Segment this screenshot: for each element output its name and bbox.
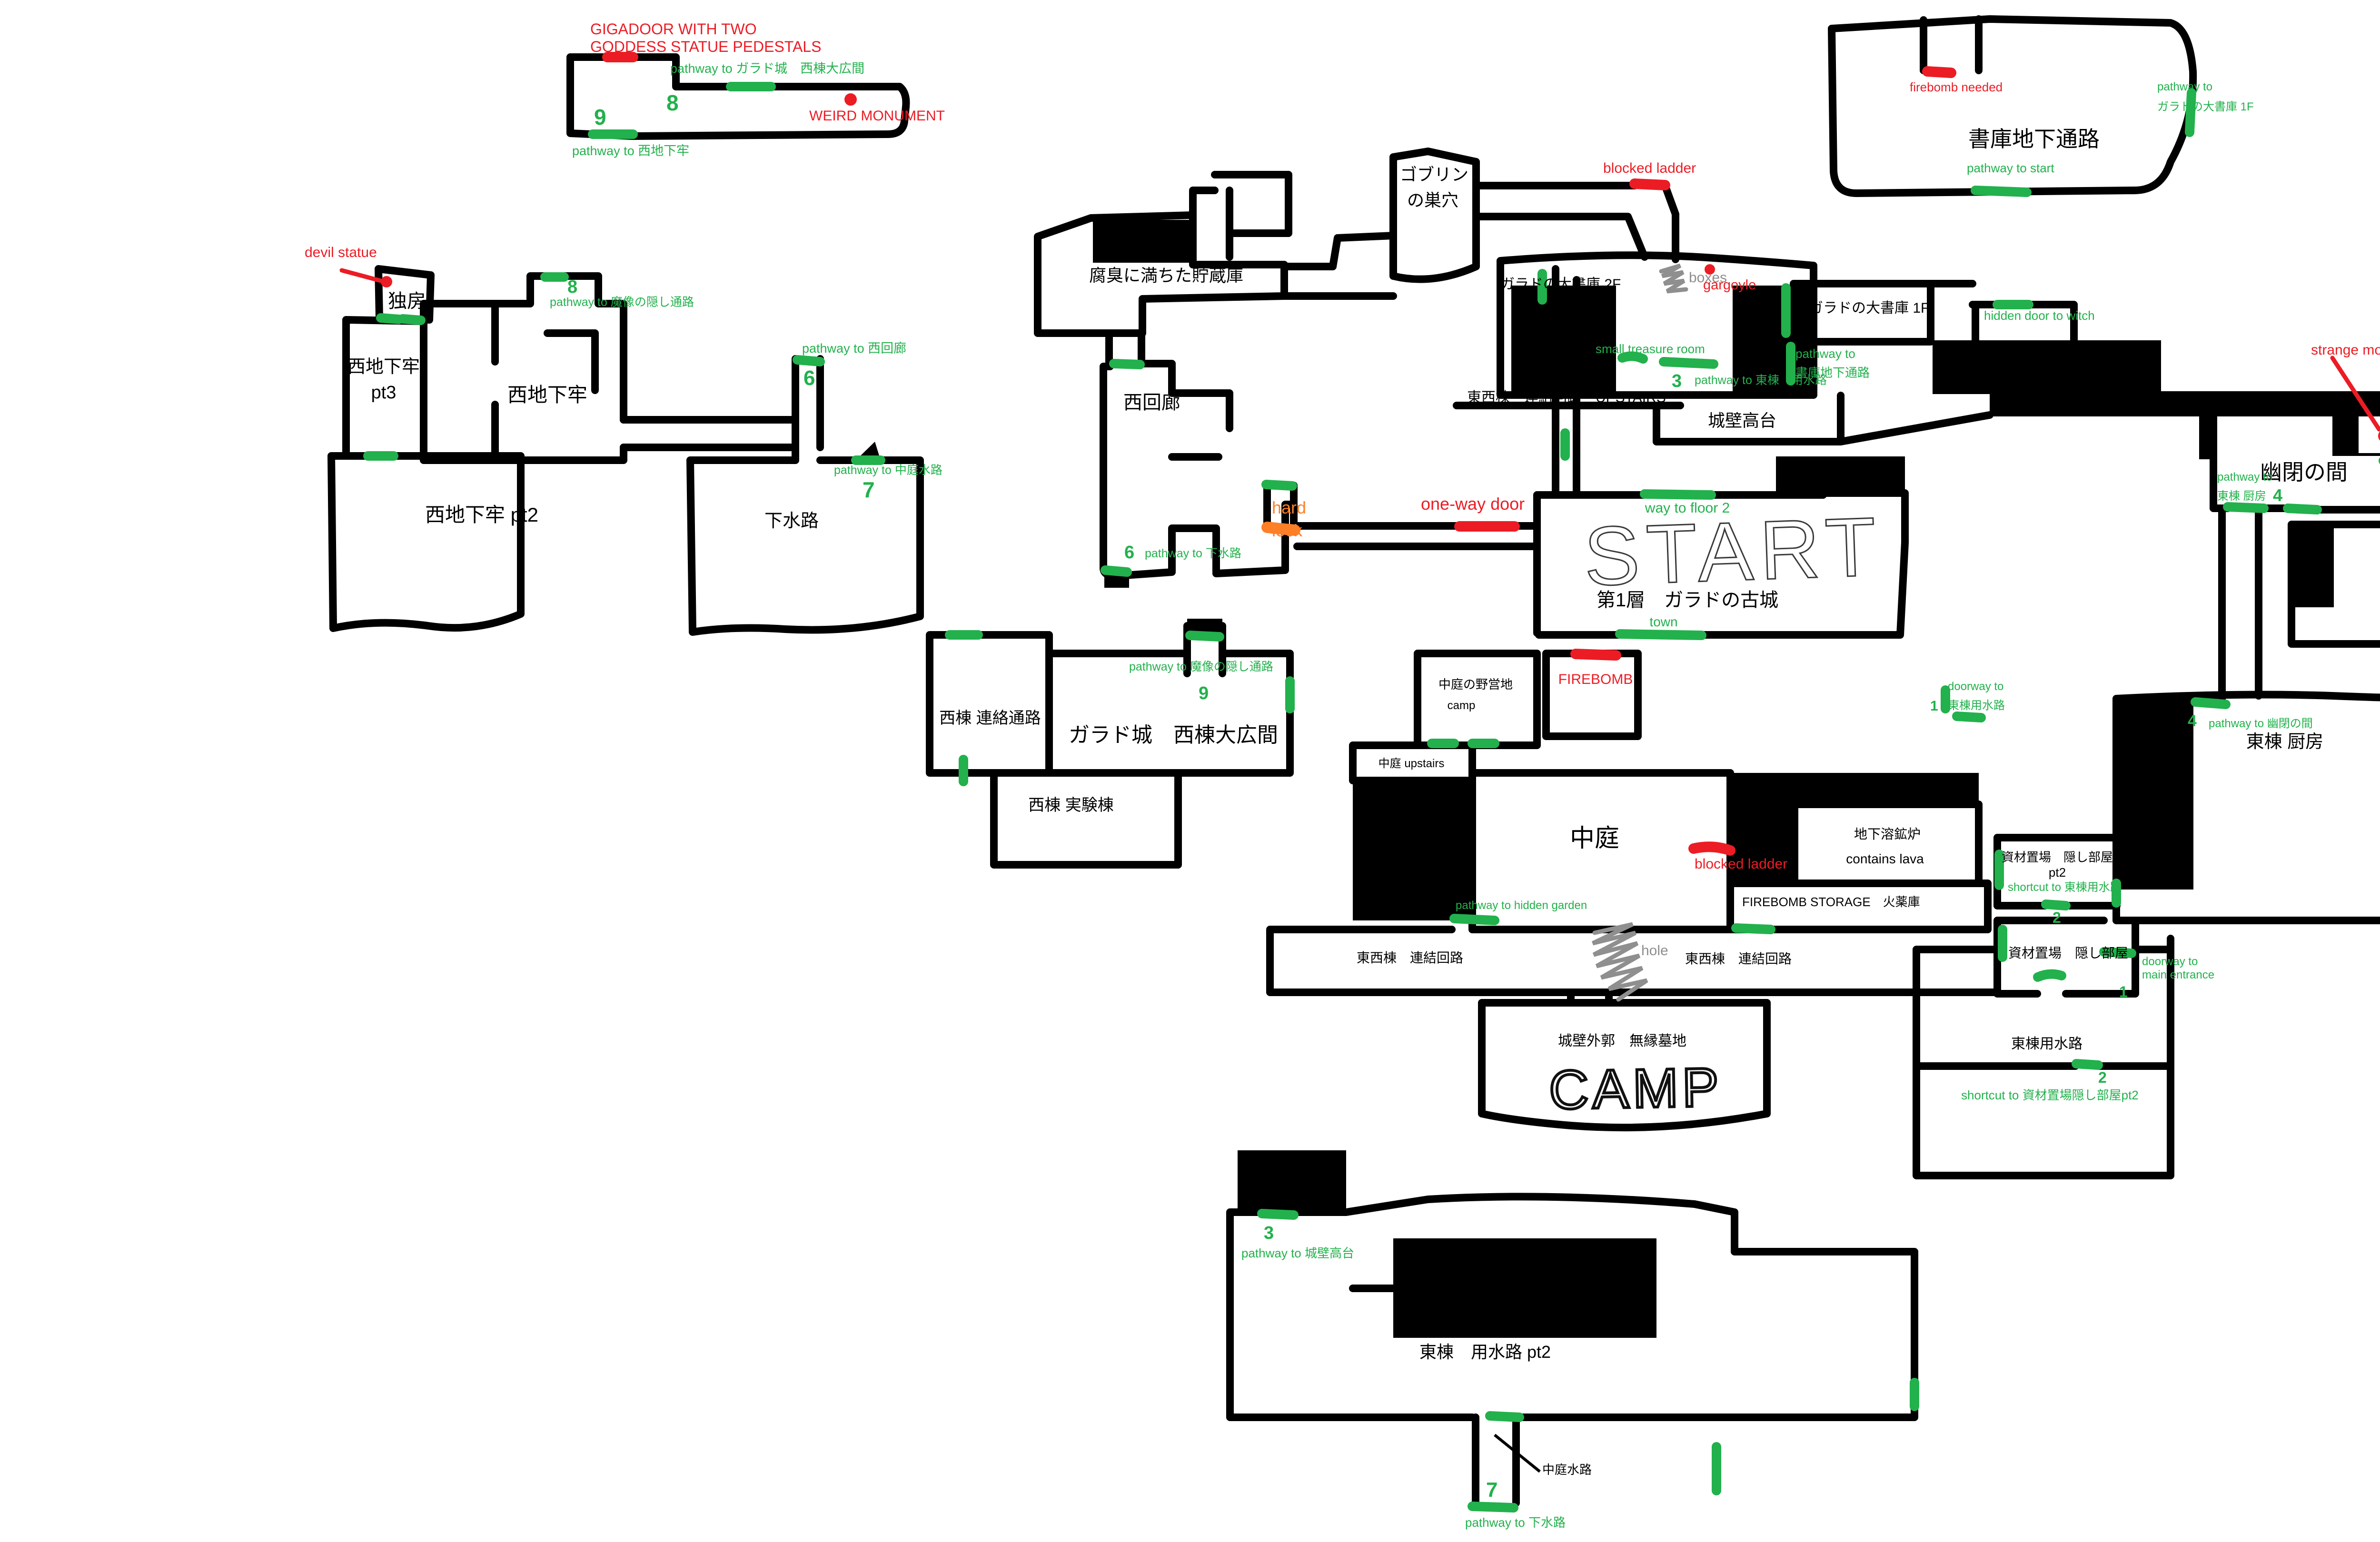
room-yuhei: 幽閉の間 [2260,461,2348,484]
room-east-yosuiro-pt2: 東棟 用水路 pt2 [1419,1343,1551,1361]
green-door [1620,634,1702,635]
green-door [1490,1416,1519,1417]
wall-fill [1238,1150,1346,1210]
note-strange-monument: strange monument [2311,343,2380,358]
map-canvas: START CAMP [0,0,2380,1542]
pathway-number-7b: 7 [1486,1479,1497,1501]
weird-monument-dot [844,93,857,106]
pathway-number-4a: 4 [2273,486,2282,504]
start-lettering: START [1583,500,1884,603]
room-walls [331,19,2380,1505]
pathway-number-4b: 4 [2188,713,2197,730]
pathway-number-1a: 1 [1930,699,1938,714]
pathway-way-floor2: way to floor 2 [1645,501,1730,516]
green-door [1262,1214,1294,1215]
pathway-garado-west-hall: pathway to ガラド城 西棟大広間 [670,62,864,75]
room-nakaniwa-suiro: 中庭水路 [1542,1463,1592,1476]
green-door [1645,494,1711,495]
pathway-number-3a: 3 [1672,372,1682,391]
red-door-blocked-ladder-top [1635,184,1665,185]
pathway-town: town [1649,615,1677,629]
room-shizai-pt2-l1: 資材置場 隠し部屋 [2002,851,2113,864]
pathway-shoko-chika-l2: 書庫地下通路 [1795,366,1870,379]
room-fushu-storage: 腐臭に満ちた貯蔵庫 [1089,267,1243,285]
room-west-renraku: 西棟 連絡通路 [939,710,1041,727]
room-joheki-takadai: 城壁高台 [1708,412,1776,430]
hand-drawn-dungeon-map: START CAMP GIGADOOR WITH TWO GODDESS STA… [0,0,2380,1542]
pathway-yuhei: pathway to 幽閉の間 [2209,718,2313,730]
pathway-gesuiro-west: pathway to 下水路 [1145,547,1241,560]
red-door-blocked-ladder-mid [1694,847,1730,850]
green-door [1716,1383,1914,1491]
green-door [1472,1506,1514,1508]
room-renketsu-right: 東西棟 連結回路 [1685,952,1792,966]
note-gigadoor-line1: GIGADOOR WITH TWO [590,21,757,38]
green-door [1786,288,1791,381]
room-west-jikken: 西棟 実験棟 [1028,797,1113,814]
wall-firebomb-room [1546,653,1638,736]
pathway-kitchen-l1: pathway to [2217,471,2272,483]
pathway-number-1b: 1 [2119,984,2128,1000]
pathway-number-6a: 6 [803,367,815,389]
room-west-dungeon: 西地下牢 [507,385,587,405]
wall-dungeon-corridor [624,359,820,460]
pathway-gesuiro-bottom: pathway to 下水路 [1465,1516,1566,1529]
green-door [1266,484,1292,486]
green-door [2195,702,2226,704]
shortcut-shizai-pt2: shortcut to 資材置場隠し部屋pt2 [1961,1089,2139,1102]
room-west-dungeon-pt2: 西地下牢 pt2 [425,504,538,525]
room-shoko-chika: 書庫地下通路 [1968,128,2100,150]
pathway-number-9a: 9 [594,106,606,128]
pathway-number-8b: 8 [567,278,577,297]
wall-fill [1730,773,1979,804]
red-door-firebomb-needed [1927,71,1951,73]
doorway-main-entrance-l1: doorway to [2142,956,2198,968]
shortcut-east-yosuiro: shortcut to 東棟用水路 [2008,881,2122,893]
pathway-kitchen-l2: 東棟 厨房 [2217,490,2266,502]
note-firebomb: FIREBOMB [1558,672,1633,687]
hole-scribble [1593,924,1647,999]
green-door [797,360,820,362]
room-garado-hall: ガラド城 西棟大広間 [1069,724,1278,746]
pathway-mazou-2: pathway to 魔像の隠し通路 [1129,661,1273,673]
room-shizai-pt2-l2: pt2 [2049,866,2066,879]
pathway-hidden-garden: pathway to hidden garden [1456,899,1587,911]
room-shizai: 資材置場 隠し部屋 [2008,946,2128,960]
pathway-west-dungeon: pathway to 西地下牢 [572,144,689,158]
wall-nakaniwa-camp [1418,653,1537,745]
room-firebomb-storage: FIREBOMB STORAGE 火薬庫 [1742,896,1920,909]
pathway-hidden-witch: hidden door to witch [1984,309,2095,322]
doorway-east-yosuiro-l2: 東棟用水路 [1948,700,2005,712]
green-door [1975,190,2027,192]
room-renketsu-left: 東西棟 連結回路 [1357,951,1463,965]
wall-west-jikken [994,773,1178,865]
pathway-shoko-chika-l1: pathway to [1795,347,1855,360]
note-hard-lock-line1: hard [1272,499,1306,517]
wall-fill [1393,1238,1656,1338]
wall-fill [1353,781,1472,920]
green-door [1622,356,1643,359]
note-hard-lock-line2: lock [1272,522,1302,540]
pathway-number-2a: 2 [2053,910,2061,926]
green-door [2076,1064,2098,1065]
wall-west-dungeon-pt2 [331,456,521,628]
pathway-joheki-takadai: pathway to 城壁高台 [1241,1247,1354,1260]
wall-fill [1933,340,2161,394]
wall-fill [2291,524,2334,607]
pathway-start: pathway to start [1967,162,2054,175]
room-nakaniwa-camp-l1: 中庭の野営地 [1438,678,1513,691]
room-nakaniwa-upstairs: 中庭 upstairs [1378,758,1445,770]
wall-fill [1990,391,2380,416]
room-gesuiro: 下水路 [764,512,819,531]
room-yokoro-l2: contains lava [1846,852,1924,866]
room-nakaniwa-camp-l2: camp [1448,700,1476,712]
wall-fill [1511,286,1616,393]
wall-ladder-corridor [1476,186,1676,259]
pathway-number-9b: 9 [1199,684,1209,703]
wall-fill [2117,699,2193,890]
pathway-number-7a: 7 [863,478,875,501]
pathway-west-corridor: pathway to 西回廊 [802,342,906,355]
boxes-scribble [1661,266,1686,291]
green-door [1105,570,1127,572]
room-renketsu-upstairs: 東西棟 連結回路 UPSTAIRS [1467,390,1666,405]
pathway-small-treasure: small treasure room [1596,343,1705,356]
room-muen-bochi: 城壁外郭 無縁墓地 [1558,1034,1686,1049]
green-door [381,318,421,320]
pathway-mazou-1: pathway to 魔像の隠し通路 [550,296,694,308]
note-hole: hole [1641,943,1668,959]
room-library-2f: ガラドの大書庫 2F [1500,277,1621,292]
room-east-yosuiro: 東棟用水路 [2011,1037,2082,1052]
note-blocked-ladder-mid: blocked ladder [1695,857,1787,872]
camp-lettering: CAMP [1548,1057,1723,1121]
pathway-number-8a: 8 [666,91,679,114]
room-goblin-nest-l2: の巣穴 [1407,191,1458,209]
pathway-number-6b: 6 [1124,544,1134,563]
wall-west-renraku [930,635,1049,773]
pathway-lib1f-a-l2: ガラドの大書庫 1F [2157,101,2254,113]
note-gigadoor-line2: GODDESS STATUE PEDESTALS [590,39,821,55]
note-blocked-ladder-top: blocked ladder [1603,161,1696,176]
room-west-dungeon-pt3-l1: 西地下牢 [347,358,420,377]
wall-yokoro [1795,804,1979,883]
floor-title: 第1層 ガラドの古城 [1597,590,1778,610]
pathway-nakaniwa-suiro: pathway to 中庭水路 [834,464,942,476]
green-door [1736,928,1771,929]
room-yokoro-l1: 地下溶鉱炉 [1854,827,1921,841]
pathway-lib1f-a-l1: pathway to [2157,81,2212,93]
room-nakaniwa: 中庭 [1570,826,1619,852]
note-devil-statue: devil statue [305,245,377,260]
wall-fill [1093,220,1191,263]
note-oneway-door: one-way door [1421,495,1525,513]
green-door [1114,364,1140,365]
doorway-main-entrance-l2: main entrance [2142,969,2214,981]
green-door [1664,362,1714,364]
doorway-east-yosuiro-l1: doorway to [1948,681,2003,692]
wall-fill [1776,456,1905,493]
room-dokubou: 独房 [388,291,426,311]
room-library-1f: ガラドの大書庫 1F [1809,301,1929,316]
wall-fill [2332,416,2357,456]
wall-fills [856,220,2380,1338]
wall-gesuiro [690,460,920,632]
room-kitchen: 東棟 厨房 [2246,733,2324,752]
room-goblin-nest-l1: ゴブリン [1400,166,1468,184]
room-west-dungeon-pt3-l2: pt3 [371,384,397,403]
wall-garado-hall [1049,626,1290,773]
note-firebomb-needed: firebomb needed [1910,81,2003,94]
green-door [1454,919,1495,920]
pathway-number-3b: 3 [1264,1224,1274,1243]
note-weird-monument: WEIRD MONUMENT [809,109,945,124]
pathway-number-2b: 2 [2098,1070,2107,1086]
room-west-corridor: 西回廊 [1123,393,1180,413]
note-boxes: boxes [1689,270,1727,286]
red-door-firebomb [1576,654,1616,655]
green-door [1190,635,1220,637]
